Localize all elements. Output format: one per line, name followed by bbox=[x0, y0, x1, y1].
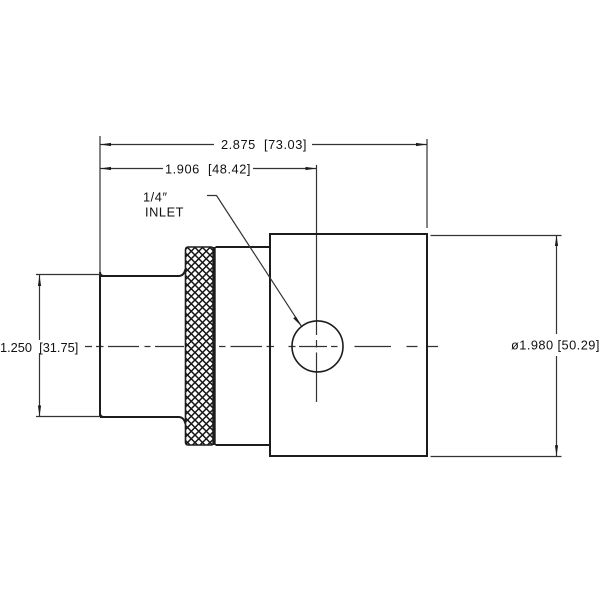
svg-text:ø1.980 [50.29]: ø1.980 [50.29] bbox=[511, 338, 600, 353]
svg-text:INLET: INLET bbox=[145, 205, 184, 220]
svg-text:2.875 [73.03]: 2.875 [73.03] bbox=[221, 137, 307, 152]
svg-text:1.906 [48.42]: 1.906 [48.42] bbox=[165, 162, 251, 177]
svg-text:1/4″: 1/4″ bbox=[143, 190, 168, 205]
svg-text:1.250 [31.75]: 1.250 [31.75] bbox=[0, 340, 78, 355]
